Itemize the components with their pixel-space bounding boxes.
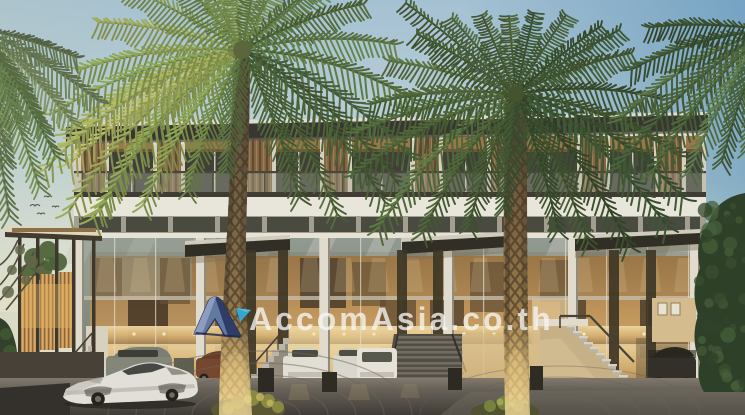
svg-text:AccomAsia.co.th: AccomAsia.co.th (249, 301, 554, 337)
